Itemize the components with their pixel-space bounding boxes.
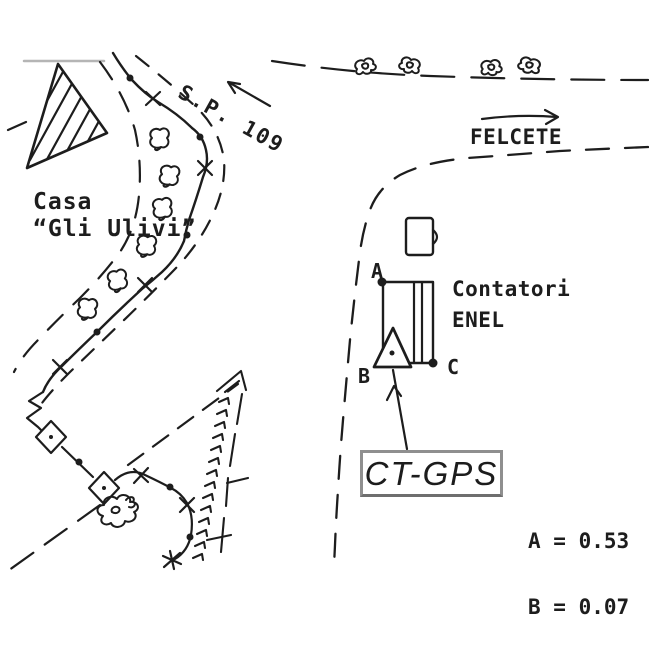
meters-label-line1: Contatori xyxy=(452,277,570,301)
olive-tree-icon xyxy=(107,269,129,294)
survey-dot xyxy=(94,329,101,336)
x-mark xyxy=(180,498,194,512)
callout-arrow xyxy=(387,370,407,449)
survey-dot xyxy=(167,484,174,491)
transformer-box xyxy=(406,218,437,255)
survey-dot xyxy=(76,459,83,466)
x-mark xyxy=(138,278,152,292)
sketch-map-page: Casa“Gli Ulivi” S.P. 109 FELCETE Contato… xyxy=(0,0,649,649)
measurements-block: A = 0.53 B = 0.07 C = 0.32 xyxy=(528,486,629,649)
building-hatching xyxy=(10,40,125,202)
scarp-branch xyxy=(207,535,231,540)
top-boundary-dashed xyxy=(272,61,648,80)
building-hatched-triangle xyxy=(8,40,125,202)
point-b-label: B xyxy=(358,364,370,388)
point-c-dot xyxy=(429,359,438,368)
direction-label: FELCETE xyxy=(470,125,562,149)
driveway-curve xyxy=(115,472,192,559)
x-mark xyxy=(146,92,160,105)
house-label-line1: Casa xyxy=(33,189,92,215)
meters-label: ContatoriENEL xyxy=(452,274,570,336)
station-callout-box: CT-GPS xyxy=(360,450,503,497)
olive-tree-icon xyxy=(77,298,98,321)
bush-icon xyxy=(480,58,503,76)
felcete-arrow xyxy=(482,110,558,124)
meters-label-line2: ENEL xyxy=(452,308,505,332)
station-triangle xyxy=(374,328,411,367)
point-a-label: A xyxy=(371,259,383,283)
survey-dot xyxy=(197,134,204,141)
survey-dots xyxy=(76,75,204,541)
utility-diamond-1 xyxy=(36,421,66,453)
station-label: CT-GPS xyxy=(365,455,499,493)
bush-icon xyxy=(518,57,540,73)
building-outline xyxy=(27,64,107,168)
x-mark xyxy=(53,360,67,374)
house-label-line2: “Gli Ulivi” xyxy=(33,216,196,242)
bush-icon xyxy=(399,57,420,73)
olive-tree-icon xyxy=(159,164,181,188)
stray-stroke xyxy=(8,122,26,130)
house-label: Casa“Gli Ulivi” xyxy=(33,189,196,243)
measurement-b: B = 0.07 xyxy=(528,596,629,618)
survey-dot xyxy=(127,75,134,82)
shrub-icon xyxy=(97,495,137,527)
asterisk-mark xyxy=(163,551,181,569)
survey-dot xyxy=(187,534,194,541)
station-dot xyxy=(390,351,395,356)
zigzag-kink xyxy=(27,392,44,433)
olive-tree-icon xyxy=(150,128,169,150)
scarp-spine xyxy=(221,394,242,552)
scarp-branch xyxy=(227,478,248,483)
road-edge-lower-dashed xyxy=(5,505,100,573)
scarp-hachures xyxy=(193,371,248,560)
measurement-a: A = 0.53 xyxy=(528,530,629,552)
point-c-label: C xyxy=(447,355,459,379)
sp109-arrow xyxy=(228,82,270,106)
